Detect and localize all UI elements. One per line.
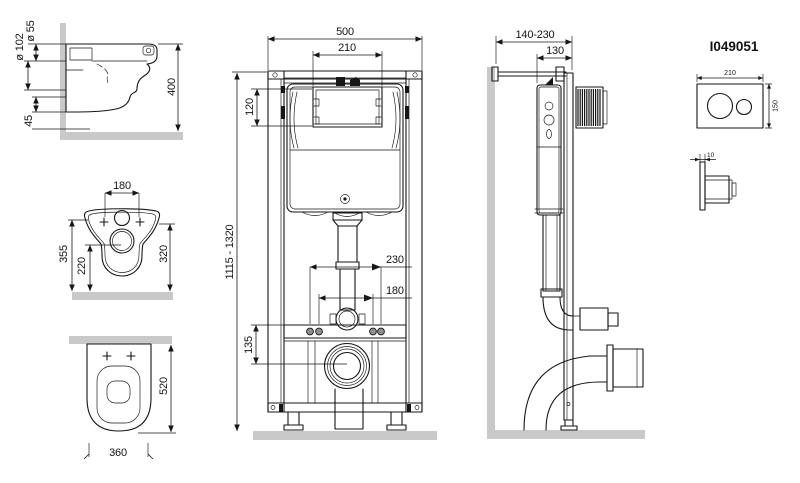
frame-front-view: 500 210 120 1115 - 1320 230 180 135 <box>224 26 437 440</box>
seat-outline <box>87 344 151 431</box>
pan-detail-lines <box>66 61 147 70</box>
rail-inner-lines <box>281 79 409 403</box>
frame-rail-left <box>268 71 284 412</box>
flush-connector <box>580 308 608 330</box>
flush-symbol-dot <box>343 197 346 200</box>
flush-pipe-coupling <box>336 262 359 269</box>
frame-column <box>564 73 573 420</box>
flush-pipe-side <box>543 215 560 291</box>
plate-big-button <box>708 94 733 119</box>
dim-top-outlet: 220 <box>76 257 88 275</box>
drain-chute <box>335 389 363 429</box>
dim-window-width: 210 <box>338 42 356 54</box>
plate-side <box>700 162 705 210</box>
pan-water-line <box>97 64 108 84</box>
dim-window-height: 120 <box>244 98 256 116</box>
dim-frame-height-range: 1115 - 1320 <box>224 224 236 279</box>
dim-pan-outlet-diameter: ø 102 <box>14 33 26 60</box>
extension-lines <box>24 44 183 129</box>
frame-rail-right <box>406 71 422 412</box>
flush-pipe-lower <box>340 269 355 310</box>
flush-bend-taper <box>333 220 362 226</box>
drawing-canvas: ø 55 ø 102 45 400 180 355 220 320 520 <box>0 0 800 483</box>
frame-struts <box>308 341 378 403</box>
duct-ribs <box>578 89 600 126</box>
wall-section <box>72 292 173 300</box>
valve-port <box>545 102 553 110</box>
floor-section <box>253 431 437 440</box>
drain-sleeve <box>613 349 643 387</box>
dim-outlet-height: 135 <box>243 336 255 354</box>
rail-clip <box>281 86 285 93</box>
seat-ring <box>97 366 140 423</box>
flush-hole <box>115 211 130 226</box>
bolt-tab <box>279 404 283 412</box>
window-clips <box>314 99 381 124</box>
plate-model-code: I049051 <box>710 39 759 54</box>
pipe-coupling-side <box>541 289 562 297</box>
duct-cap <box>603 91 607 124</box>
foot-tube <box>565 420 573 426</box>
bolt-tab <box>407 404 411 412</box>
fixing-bolt <box>370 328 377 335</box>
arrowhead <box>364 295 373 302</box>
pan-plan-view: 520 360 <box>69 336 176 459</box>
drain-ring <box>330 349 364 383</box>
technical-drawing-page: ø 55 ø 102 45 400 180 355 220 320 520 <box>0 0 800 483</box>
floor-section <box>487 430 645 439</box>
flush-elbow <box>543 297 573 330</box>
plate-mechanism-cap <box>732 183 736 196</box>
fixing-bolt <box>316 328 323 335</box>
clamp-wedge <box>545 77 553 85</box>
outlet-hole <box>110 229 134 253</box>
dim-side-cistern-depth: 130 <box>546 45 564 57</box>
dim-plate-height: 150 <box>773 100 780 112</box>
drain-outlet <box>325 344 370 389</box>
dim-pan-offset: 45 <box>23 115 35 127</box>
bolt-cross-marks <box>103 352 135 360</box>
plate-small-button <box>737 100 752 115</box>
frame-bottom-bar <box>268 403 422 412</box>
dim-pan-height: 400 <box>166 78 178 96</box>
flush-connector-stub <box>608 313 618 326</box>
rail-clip <box>405 86 409 93</box>
screw-top-left <box>273 73 277 77</box>
wall-section <box>69 336 172 344</box>
extension-lines <box>89 433 176 457</box>
drain-elbow <box>524 356 607 430</box>
plate-mechanism-inner <box>705 180 732 199</box>
dim-plate-thickness: 10 <box>707 152 715 159</box>
access-window-inner <box>316 90 379 124</box>
bolt-cross-marks <box>100 218 144 226</box>
dim-plan-width: 360 <box>109 447 127 459</box>
pan-button-slot <box>143 46 154 55</box>
dim-top-bolt-spacing: 180 <box>113 180 131 192</box>
foot-pad-right <box>387 425 406 430</box>
wall-section <box>487 67 495 430</box>
foot-pad-left <box>284 425 303 430</box>
outlet-hole-inner <box>113 232 132 251</box>
cistern-side-moulding <box>290 92 400 148</box>
pan-top-view: 180 355 220 320 <box>58 180 175 300</box>
plate-front <box>697 84 763 128</box>
screw-top-right <box>413 73 417 77</box>
pan-top-outline <box>84 209 159 276</box>
extension-lines <box>232 36 422 364</box>
arrowhead <box>372 264 381 271</box>
dim-frame-width: 500 <box>336 26 354 38</box>
dim-plan-length: 520 <box>158 377 170 395</box>
fixing-bolt <box>378 328 385 335</box>
valve-slot <box>547 130 552 139</box>
dim-top-rim: 320 <box>158 245 170 263</box>
outlet-clamp-left <box>330 314 336 324</box>
flush-pipe-lines <box>546 215 557 291</box>
pan-rim-inner <box>70 48 92 60</box>
rail-clip <box>281 106 285 119</box>
foot-pad <box>561 426 577 430</box>
foot-right <box>391 412 402 425</box>
cistern-profile-inner <box>539 87 559 213</box>
flush-pipe-upper <box>338 226 357 262</box>
screw-bottom-left <box>271 406 275 410</box>
cistern-body-inner <box>290 87 400 209</box>
drain-flange <box>607 345 613 391</box>
access-window <box>313 87 382 127</box>
bowl-opening <box>107 381 130 403</box>
rail-clip <box>405 106 409 119</box>
dim-fixing-outer: 230 <box>386 254 404 266</box>
frame-side-view: 140-230 130 <box>487 29 645 439</box>
flush-valve-top <box>350 77 360 86</box>
drain-ring-inner <box>334 353 361 380</box>
dim-top-depth: 355 <box>58 245 70 263</box>
dim-pan-flush-diameter: ø 55 <box>25 20 37 41</box>
cistern-body <box>287 84 403 212</box>
foot-left <box>288 412 299 425</box>
pan-button <box>146 48 151 53</box>
floor-section <box>60 132 183 140</box>
cistern-profile <box>537 85 561 215</box>
rod-clamp <box>556 67 564 81</box>
fill-valve-top <box>336 77 345 86</box>
dim-side-depth-range: 140-230 <box>516 29 555 41</box>
pan-side-view: ø 55 ø 102 45 400 <box>14 20 183 140</box>
fixing-bolt <box>307 328 314 335</box>
flush-plate-view: I049051 210 150 10 <box>690 39 780 210</box>
outlet-clamp-right <box>359 314 365 324</box>
wall-section <box>60 23 66 132</box>
pan-top-inner <box>88 212 155 272</box>
dim-plate-width: 210 <box>724 70 736 77</box>
screw-bottom-right <box>415 406 419 410</box>
column-screw <box>567 403 570 406</box>
valve-port <box>544 115 554 125</box>
dim-fixing-inner: 180 <box>386 285 404 297</box>
